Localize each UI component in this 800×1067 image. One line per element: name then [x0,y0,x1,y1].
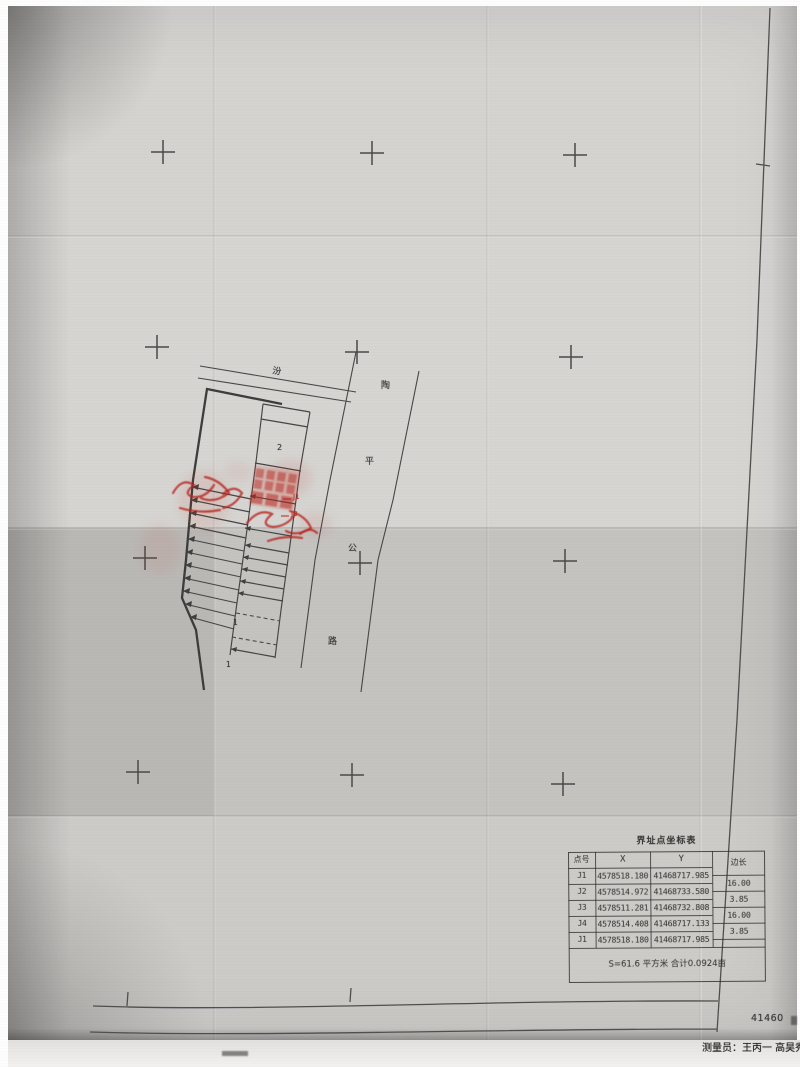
cell-x-2: 4578511.281 [595,899,650,915]
red-stamp [249,465,301,512]
photo-of-survey-sheet: 汾 陶 平 公 路 2 1 1 J1 J3 界址点坐标表 点号XY边长J1457… [0,0,800,1067]
cell-edge-length-3: 3.85 [712,923,765,939]
parcel-boundary [182,389,282,690]
building-unit-label-1b: 1 [226,661,231,669]
boundary-point-coordinate-table: 界址点坐标表 点号XY边长J14578518.18041468717.985J2… [568,851,766,983]
road-label-2: 陶 [381,382,390,391]
cell-edge-length-1: 3.85 [712,891,765,907]
building-unit-label-2: 2 [277,444,282,452]
cell-point-2: J3 [568,900,595,916]
building-unit-label-1a: 1 [233,619,238,627]
red-boundary-point-label-j1: J1 [293,494,300,501]
cell-point-4: J1 [569,932,596,948]
cell-y-3: 41468717.133 [650,915,712,931]
cell-edge-length-2: 16.00 [712,907,765,923]
cell-edge-length-0: 16.00 [712,875,765,891]
surveyor-line: 测量员：王丙一 高昊秀 [702,1044,800,1054]
table-footer-area: S=61.6 平方米 合计0.0924亩 [569,947,766,983]
road-label-4: 公 [348,545,357,554]
building-dashed-lines [232,613,280,645]
cell-x-3: 4578514.408 [595,915,650,931]
red-boundary-point-label-j3: J3 [291,511,298,518]
header-y: Y [650,851,712,867]
road-label-1: 汾 [271,367,281,377]
cell-y-2: 41468732.808 [650,899,712,915]
cell-point-0: J1 [568,868,595,884]
cell-y-0: 41468717.985 [650,867,712,883]
bottom-edge-text-fragment [222,1051,248,1056]
building-outline [230,404,310,658]
sheet-number: 41460 [751,1014,784,1024]
cell-x-1: 4578514.972 [595,883,650,899]
cell-y-1: 41468733.580 [650,883,712,899]
table-title: 界址点坐标表 [568,833,765,847]
cell-point-3: J4 [568,916,595,932]
header-point: 点号 [568,852,595,868]
clipped-character-fragment [791,1016,797,1025]
road-label-3: 平 [365,458,374,467]
cell-y-4: 41468717.985 [651,931,713,947]
cell-x-0: 4578518.180 [595,867,650,883]
cell-point-1: J2 [568,884,595,900]
header-x: X [595,851,650,867]
header-edge-length: 边长 [712,851,765,875]
cell-x-4: 4578518.180 [596,931,651,947]
road-label-5: 路 [328,638,337,647]
